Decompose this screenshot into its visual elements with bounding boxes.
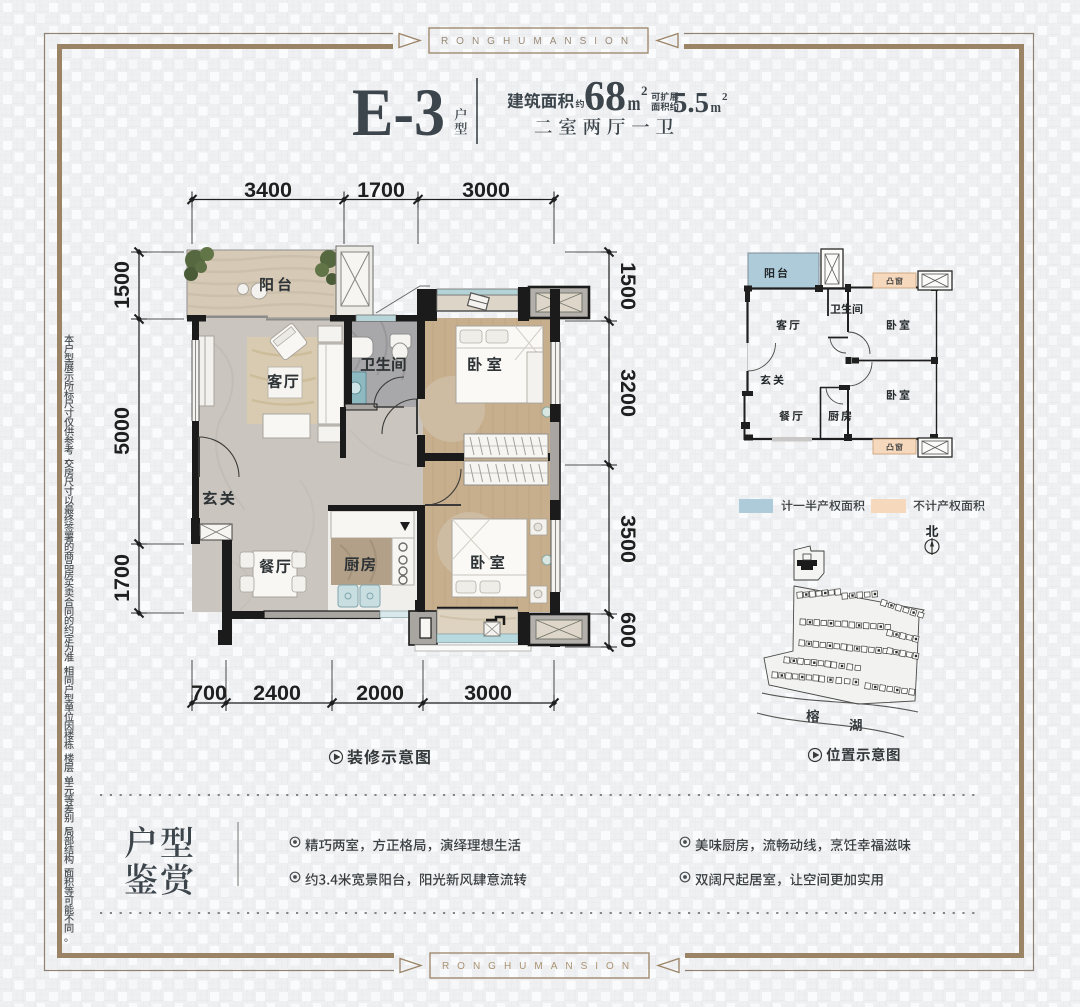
svg-text:RONGHUMANSION: RONGHUMANSION [442,961,637,972]
svg-text:m: m [711,100,722,116]
svg-text:68: 68 [584,74,626,120]
svg-text:1700: 1700 [110,554,134,602]
svg-text:1500: 1500 [110,261,134,309]
svg-text:3400: 3400 [244,178,292,202]
svg-text:3200: 3200 [616,369,640,417]
svg-text:2: 2 [641,83,648,98]
svg-text:2000: 2000 [356,681,404,705]
svg-text:1500: 1500 [616,262,640,310]
svg-text:3000: 3000 [462,178,510,202]
svg-text:3000: 3000 [464,681,512,705]
svg-text:1700: 1700 [357,178,405,202]
svg-text:m: m [628,93,641,115]
svg-text:3500: 3500 [616,515,640,563]
svg-text:5.5: 5.5 [673,87,709,119]
svg-text:2: 2 [722,91,728,103]
svg-text:2400: 2400 [253,681,301,705]
svg-text:RONGHUMANSION: RONGHUMANSION [441,36,636,47]
svg-text:600: 600 [616,612,640,648]
svg-text:E-3: E-3 [352,74,445,150]
svg-text:5000: 5000 [110,407,134,455]
svg-text:700: 700 [191,681,227,705]
